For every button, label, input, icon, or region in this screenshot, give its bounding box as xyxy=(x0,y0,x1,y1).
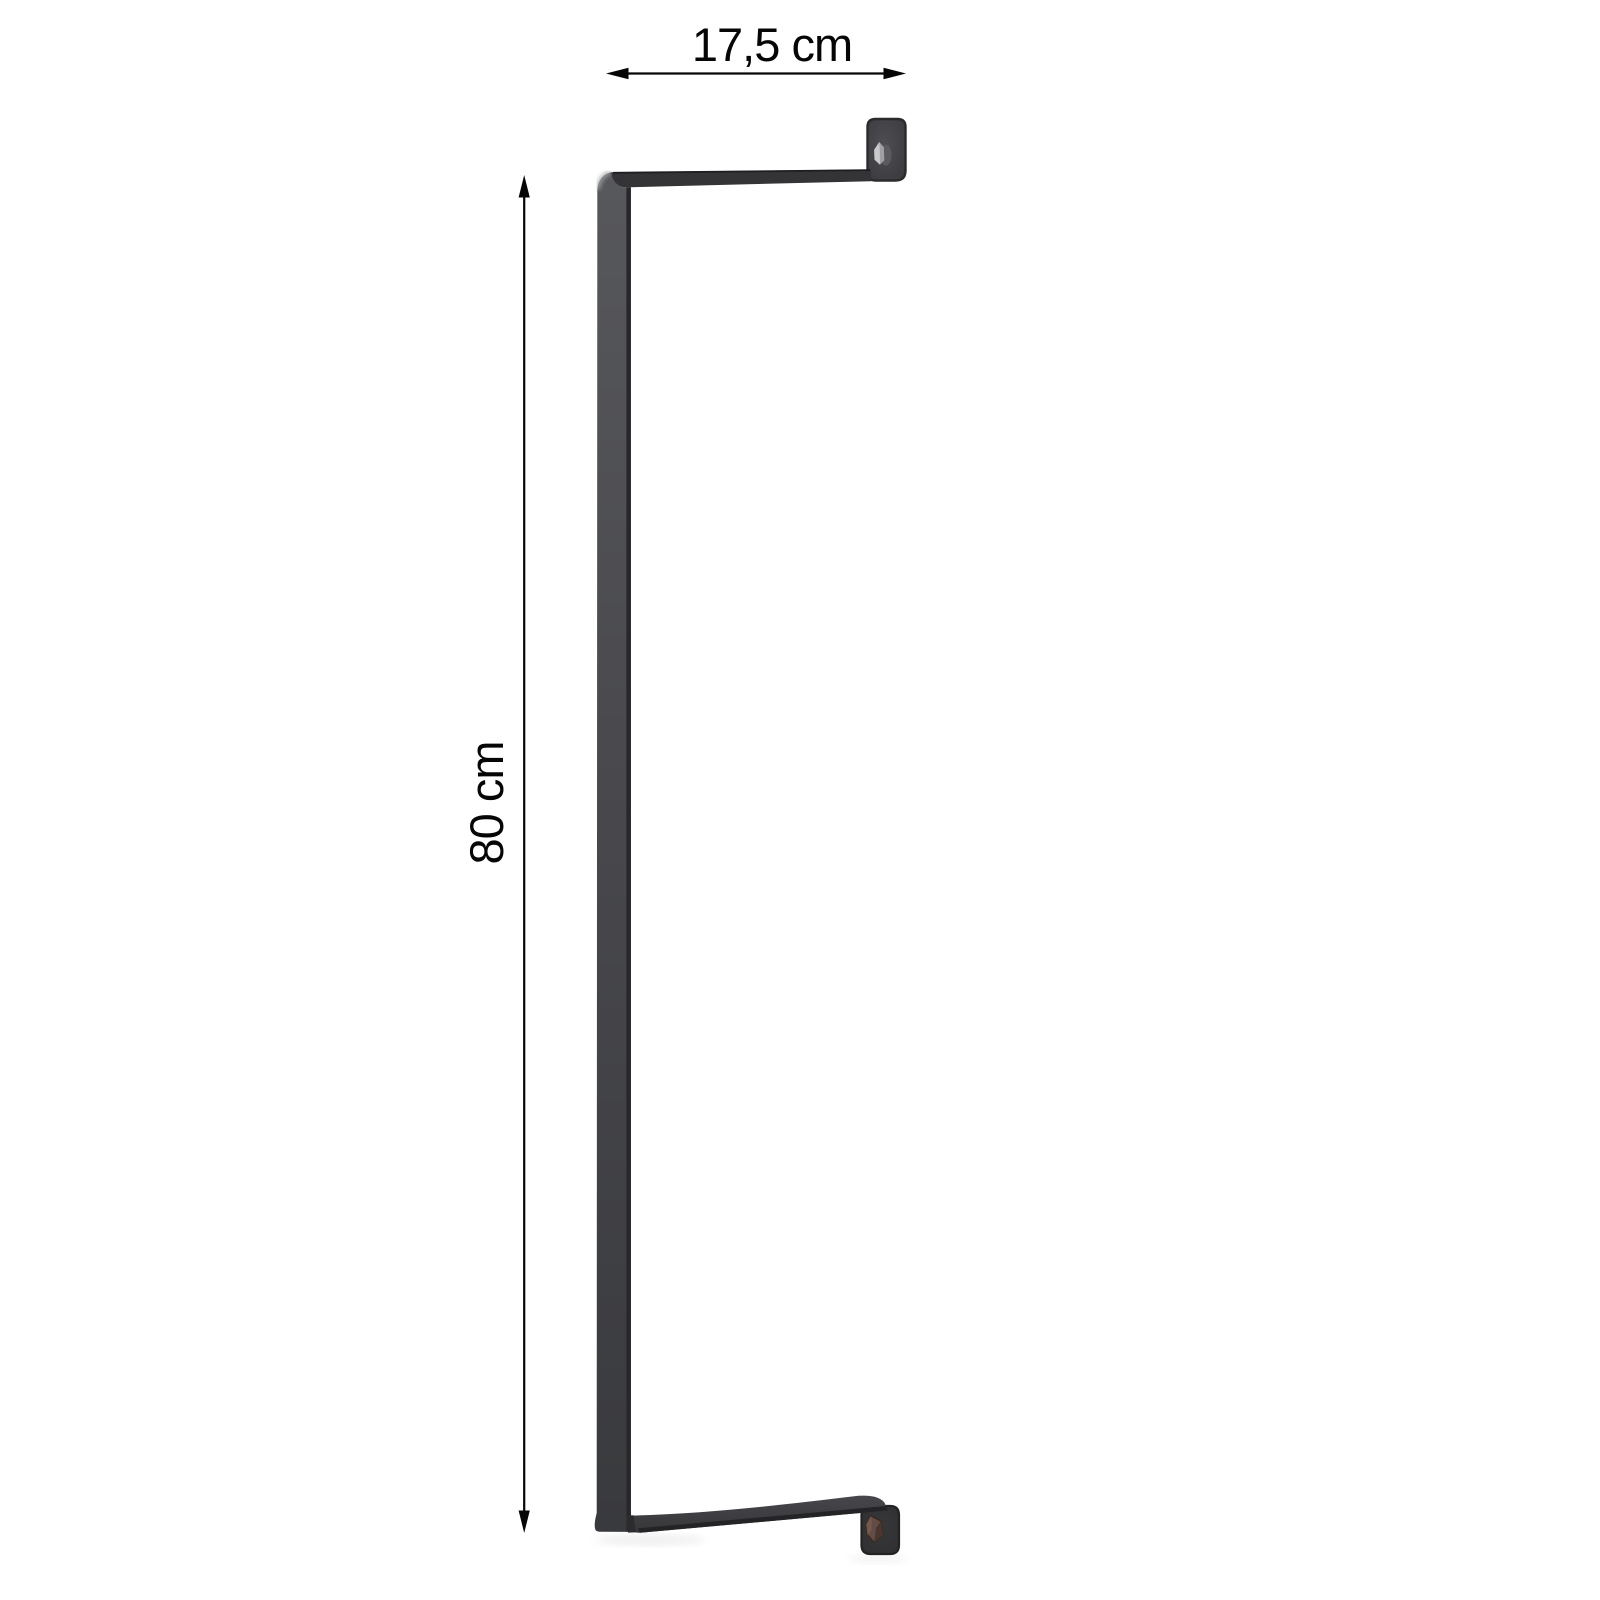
svg-text:80 cm: 80 cm xyxy=(460,742,513,865)
svg-text:17,5 cm: 17,5 cm xyxy=(692,18,852,71)
